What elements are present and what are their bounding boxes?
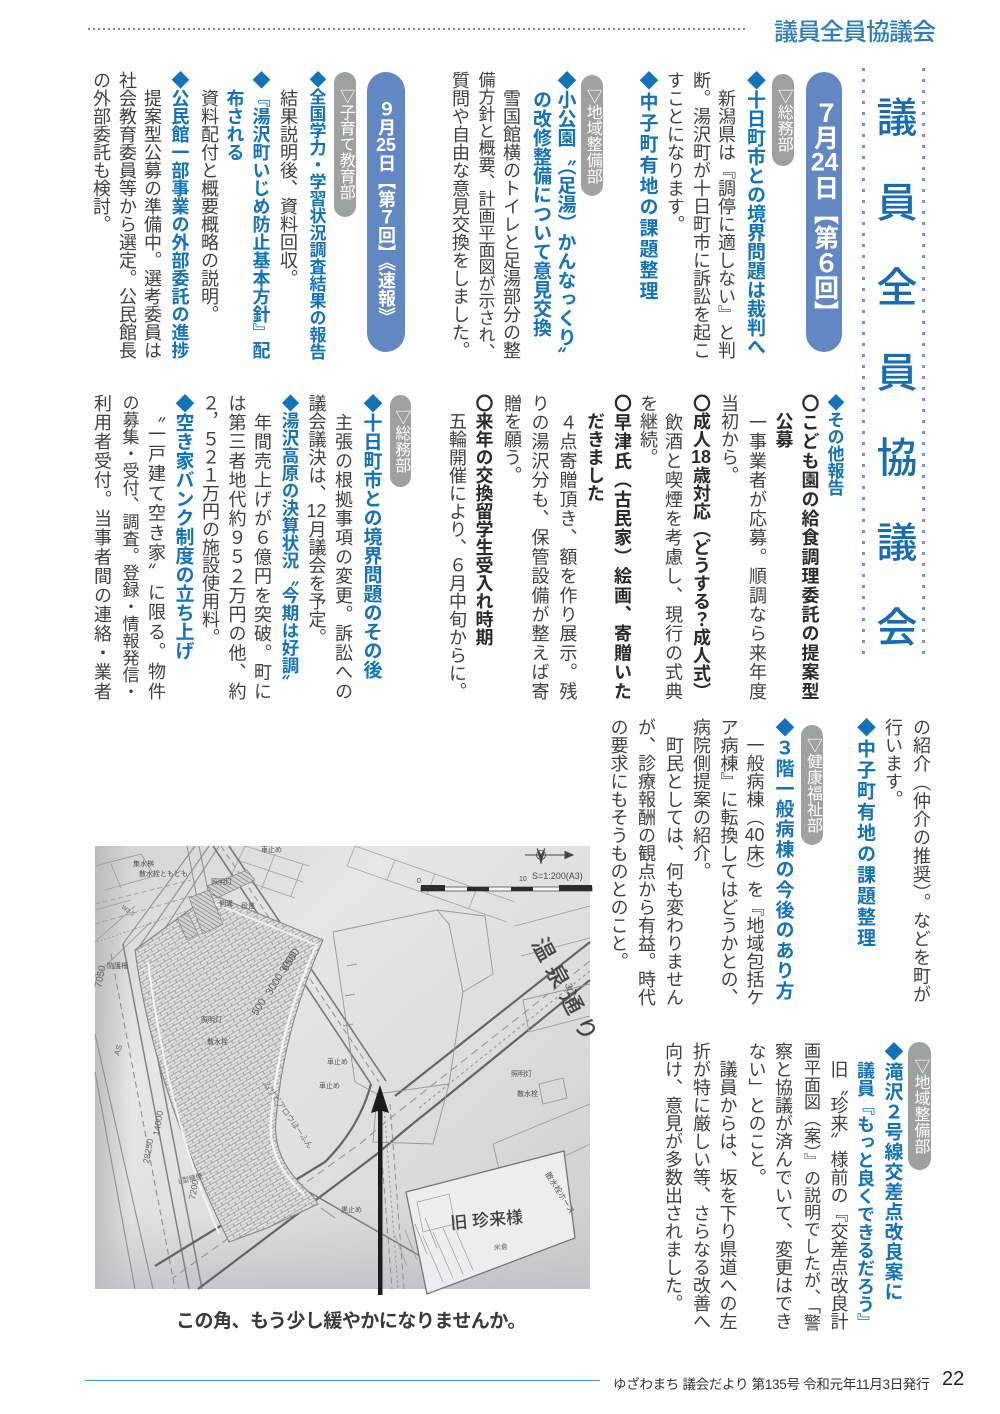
svg-text:防護柵: 防護柵 (107, 961, 128, 970)
svg-text:集水桝: 集水桝 (133, 859, 154, 868)
svg-text:10: 10 (519, 876, 527, 883)
svg-text:照明灯: 照明灯 (511, 1069, 532, 1078)
svg-text:車止め: 車止め (319, 1081, 340, 1090)
svg-text:車止め: 車止め (327, 1057, 348, 1066)
svg-text:照明灯: 照明灯 (201, 1015, 222, 1024)
svg-text:S=1:200(A3): S=1:200(A3) (532, 871, 583, 881)
svg-text:黒止め: 黒止め (341, 1205, 362, 1214)
svg-text:0: 0 (417, 878, 421, 885)
svg-text:散水栓ともども: 散水栓ともども (139, 869, 188, 878)
svg-text:照明灯: 照明灯 (211, 877, 232, 886)
svg-text:散水栓: 散水栓 (207, 1037, 228, 1046)
svg-text:車止め: 車止め (261, 845, 282, 854)
svg-text:散水栓: 散水栓 (517, 1089, 538, 1098)
svg-text:段差: 段差 (241, 901, 255, 910)
svg-text:側溝: 側溝 (219, 899, 233, 908)
